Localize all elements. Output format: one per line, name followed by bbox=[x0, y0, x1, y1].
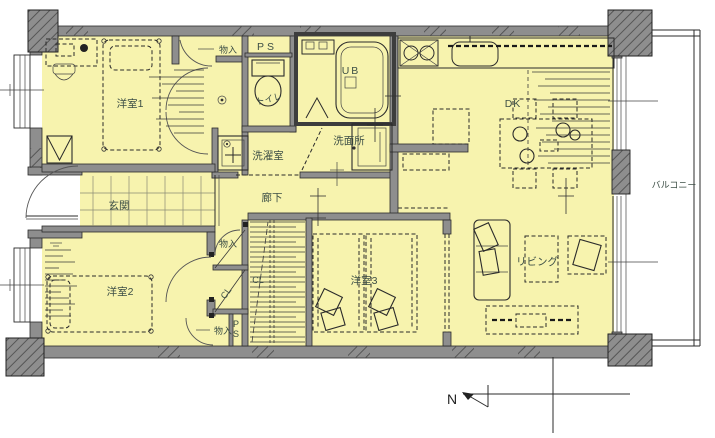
label-storage-mid: 物入 bbox=[219, 238, 237, 249]
label-storage-bottom: 物入 bbox=[214, 325, 232, 336]
north-arrowhead bbox=[462, 392, 474, 400]
window-room2 bbox=[0, 248, 44, 322]
label-closet-main: CL bbox=[252, 275, 264, 285]
label-room3: 洋室3 bbox=[351, 274, 378, 287]
window-room1 bbox=[0, 55, 44, 128]
label-room2: 洋室2 bbox=[107, 285, 134, 298]
floor-plan-drawing: 洋室1 洋室2 洋室3 玄関 廊下 リビング DK バルコニー 洗面所 洗濯室 … bbox=[0, 0, 715, 438]
label-living: リビング bbox=[516, 255, 558, 268]
label-pipe-space-bottom-s: S bbox=[233, 329, 239, 339]
label-storage-top: 物入 bbox=[219, 44, 237, 55]
label-balcony: バルコニー bbox=[652, 180, 697, 190]
label-hallway: 廊下 bbox=[262, 191, 283, 204]
label-pipe-space-top: PS bbox=[257, 41, 277, 53]
north-arrow bbox=[462, 357, 630, 433]
label-pipe-space-bottom-p: P bbox=[233, 319, 239, 329]
label-compass-north: N bbox=[447, 391, 457, 407]
label-bath: UB bbox=[342, 65, 361, 77]
label-entrance: 玄関 bbox=[109, 199, 130, 212]
label-room1: 洋室1 bbox=[117, 97, 144, 110]
entrance-recess bbox=[30, 173, 80, 232]
label-washroom: 洗面所 bbox=[333, 135, 365, 147]
floor-plan: 洋室1 洋室2 洋室3 玄関 廊下 リビング DK バルコニー 洗面所 洗濯室 … bbox=[0, 0, 715, 438]
label-laundry: 洗濯室 bbox=[252, 149, 284, 162]
floor-area bbox=[30, 36, 614, 346]
label-dining-kitchen: DK bbox=[505, 98, 522, 110]
